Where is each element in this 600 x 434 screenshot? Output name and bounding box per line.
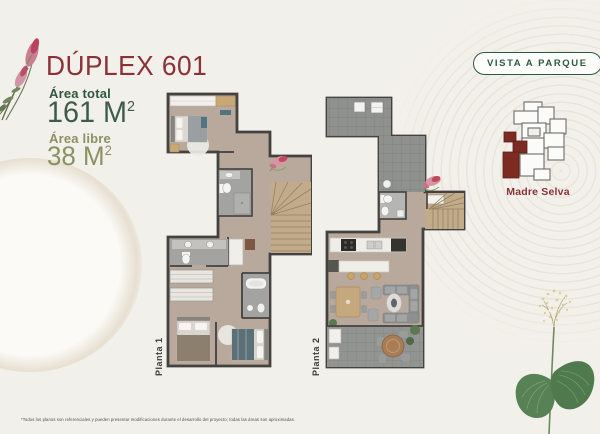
stairs: [425, 192, 464, 229]
planta-1-label: Planta 1: [154, 318, 164, 376]
planta-2-label: Planta 2: [311, 318, 321, 376]
area-total-value: 161 M2: [47, 96, 135, 130]
disclaimer-footnote: *Todos los planos son referenciales y pu…: [21, 417, 295, 422]
bedroom-bottom-left: [177, 317, 210, 361]
bathroom-upper: [379, 192, 406, 219]
brochure-page: DÚPLEX 601 Área total 161 M2 Área libre …: [0, 0, 600, 434]
bathroom-master: [170, 239, 228, 265]
page-title: DÚPLEX 601: [46, 50, 207, 82]
area-libre-value: 38 M2: [47, 141, 112, 172]
vista-a-parque-badge[interactable]: VISTA A PARQUE: [473, 52, 600, 75]
terrace-upper: [327, 98, 425, 192]
terrace-lower: [327, 325, 423, 367]
side-table: [245, 239, 255, 250]
flower-illustration: [0, 28, 52, 124]
stairs: [271, 182, 311, 253]
bathroom-hallway: [218, 169, 252, 216]
plant-illustration: [497, 283, 597, 434]
building-keyplan: [500, 101, 576, 185]
floorplan-planta-2: [321, 91, 467, 375]
keyplan-label: Madre Selva: [486, 186, 590, 198]
floorplan-planta-1: [158, 89, 312, 376]
bathroom-tub: [243, 274, 269, 317]
cabinet: [229, 239, 243, 265]
watercolor-blob-texture: [0, 158, 142, 372]
